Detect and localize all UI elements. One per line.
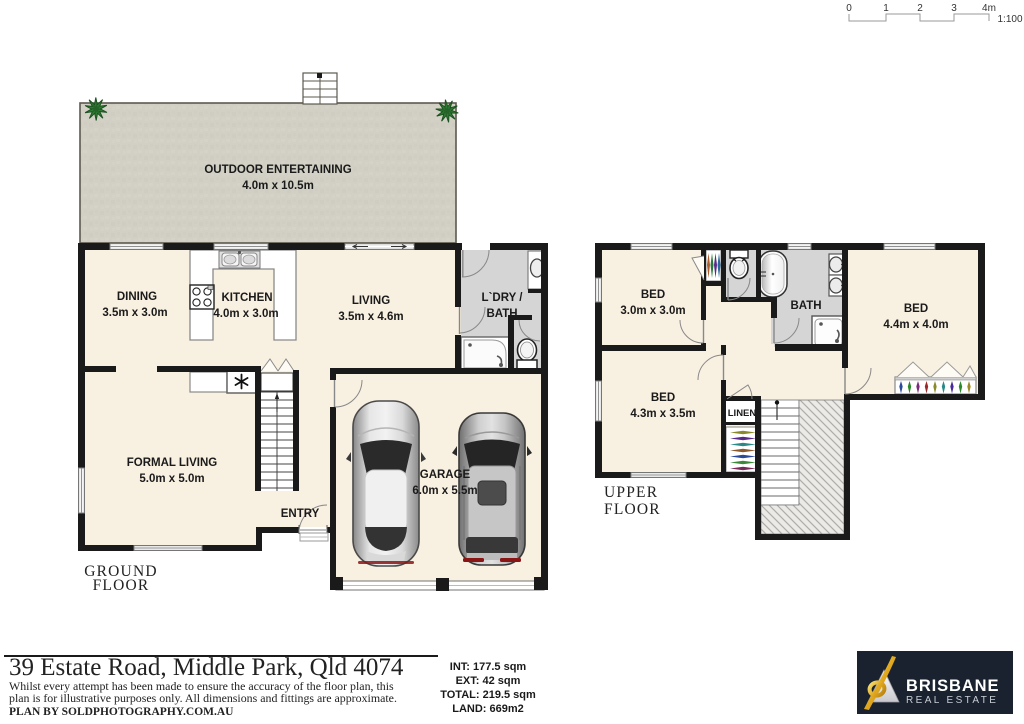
svg-text:FLOOR: FLOOR (604, 501, 661, 518)
svg-text:BRISBANE: BRISBANE (906, 677, 999, 695)
svg-text:4m: 4m (982, 3, 996, 14)
svg-text:FLOOR: FLOOR (93, 577, 150, 594)
svg-text:BED: BED (904, 303, 928, 315)
svg-text:DINING: DINING (117, 291, 157, 303)
svg-text:GARAGE: GARAGE (420, 469, 471, 481)
svg-text:ENTRY: ENTRY (281, 508, 320, 520)
svg-text:BED: BED (641, 289, 665, 301)
svg-text:3.0m x 3.0m: 3.0m x 3.0m (620, 305, 685, 317)
svg-text:4.3m x 3.5m: 4.3m x 3.5m (630, 408, 695, 420)
svg-text:3.5m x 3.0m: 3.5m x 3.0m (102, 307, 167, 319)
svg-text:4.0m x 3.0m: 4.0m x 3.0m (213, 308, 278, 320)
svg-text:BED: BED (651, 392, 675, 404)
svg-text:1: 1 (883, 3, 889, 14)
svg-text:OUTDOOR ENTERTAINING: OUTDOOR ENTERTAINING (204, 164, 351, 176)
svg-text:0: 0 (846, 3, 852, 14)
svg-text:FORMAL LIVING: FORMAL LIVING (127, 457, 218, 469)
svg-text:5.0m x 5.0m: 5.0m x 5.0m (139, 473, 204, 485)
svg-text:TOTAL: 219.5 sqm: TOTAL: 219.5 sqm (440, 689, 536, 701)
svg-text:EXT: 42 sqm: EXT: 42 sqm (456, 675, 521, 687)
svg-text:39 Estate Road, Middle Park, Q: 39 Estate Road, Middle Park, Qld 4074 (9, 654, 404, 681)
svg-text:plan is for illustrative purpo: plan is for illustrative purposes only. … (9, 691, 397, 705)
svg-text:LAND: 669m2: LAND: 669m2 (452, 703, 524, 715)
svg-text:6.0m x 5.5m: 6.0m x 5.5m (412, 485, 477, 497)
svg-text:REAL ESTATE: REAL ESTATE (906, 695, 998, 706)
svg-text:INT: 177.5 sqm: INT: 177.5 sqm (450, 661, 527, 673)
svg-text:3.5m x 4.6m: 3.5m x 4.6m (338, 311, 403, 323)
svg-text:3: 3 (951, 3, 957, 14)
svg-text:LIVING: LIVING (352, 295, 390, 307)
svg-text:BATH: BATH (486, 308, 517, 320)
svg-text:1:100: 1:100 (997, 14, 1022, 25)
svg-text:4.4m x 4.0m: 4.4m x 4.0m (883, 319, 948, 331)
svg-text:PLAN BY SOLDPHOTOGRAPHY.COM.AU: PLAN BY SOLDPHOTOGRAPHY.COM.AU (9, 706, 234, 718)
svg-text:BATH: BATH (790, 300, 821, 312)
svg-text:UPPER: UPPER (604, 484, 658, 501)
svg-text:LINEN: LINEN (728, 408, 757, 419)
svg-text:4.0m x 10.5m: 4.0m x 10.5m (242, 180, 314, 192)
svg-text:2: 2 (917, 3, 923, 14)
svg-text:KITCHEN: KITCHEN (221, 292, 272, 304)
svg-text:L`DRY /: L`DRY / (482, 292, 524, 304)
